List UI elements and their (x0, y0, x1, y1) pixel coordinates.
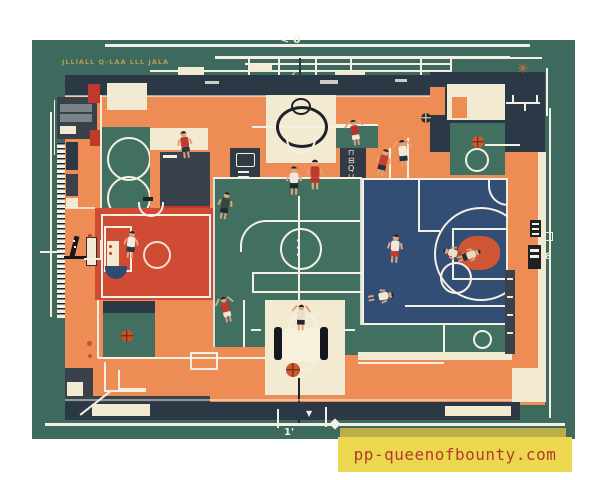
player-leg (458, 259, 464, 263)
illustration-canvas: < 0 ✓ JLLlALL Q–LAA LLL JALA 8 ✳ (0, 0, 600, 480)
player-leg (312, 183, 314, 190)
player-arm (215, 298, 220, 306)
player-figure (288, 166, 301, 194)
player-leg (405, 161, 408, 167)
player-arm (230, 201, 232, 207)
player-figure (217, 191, 234, 220)
player-jersey (378, 292, 389, 301)
player-arm (405, 140, 412, 147)
player-arm (344, 121, 349, 129)
player-leg (368, 295, 374, 298)
player-jersey (311, 166, 320, 177)
player-arm (227, 296, 234, 302)
player-leg (381, 170, 385, 176)
player-leg (353, 140, 356, 146)
player-leg (225, 317, 228, 323)
player-arm (392, 141, 398, 149)
player-figure (396, 139, 411, 167)
player-figure (124, 230, 139, 258)
player-leg (183, 152, 186, 158)
player-leg (298, 325, 300, 331)
watermark-text: pp-queenofbounty.com (354, 445, 557, 464)
player-leg (131, 252, 134, 258)
player-figure (217, 296, 234, 324)
player-head (312, 160, 319, 167)
player-leg (229, 316, 232, 322)
player-arm (357, 119, 364, 125)
player-leg (401, 161, 404, 167)
player-leg (224, 213, 227, 219)
player-leg (295, 188, 297, 194)
player-arm (299, 175, 303, 182)
player-arm (189, 138, 193, 144)
player-figure (177, 130, 193, 158)
player-figure (388, 234, 403, 263)
player-jersey (391, 240, 400, 251)
player-figure (347, 119, 363, 146)
player-leg (291, 188, 293, 194)
player-leg (220, 212, 223, 218)
player-arm (400, 243, 403, 250)
player-jersey (290, 173, 298, 184)
player-arm (136, 240, 139, 246)
player-leg (395, 256, 398, 262)
player-arm (381, 300, 387, 304)
player-figure (374, 148, 392, 177)
player-leg (316, 183, 318, 190)
player-figure (367, 289, 394, 305)
player-leg (187, 151, 190, 157)
player-arm (320, 168, 324, 175)
watermark-banner: pp-queenofbounty.com (338, 437, 572, 472)
player-figure (295, 304, 307, 330)
player-jersey (297, 310, 305, 320)
player-arm (388, 159, 390, 165)
player-leg (127, 252, 130, 258)
player-leg (302, 325, 304, 331)
player-leg (357, 139, 360, 145)
player-leg (391, 256, 394, 262)
player-figure (308, 160, 321, 190)
players-layer (0, 0, 600, 480)
player-arm (305, 305, 311, 312)
